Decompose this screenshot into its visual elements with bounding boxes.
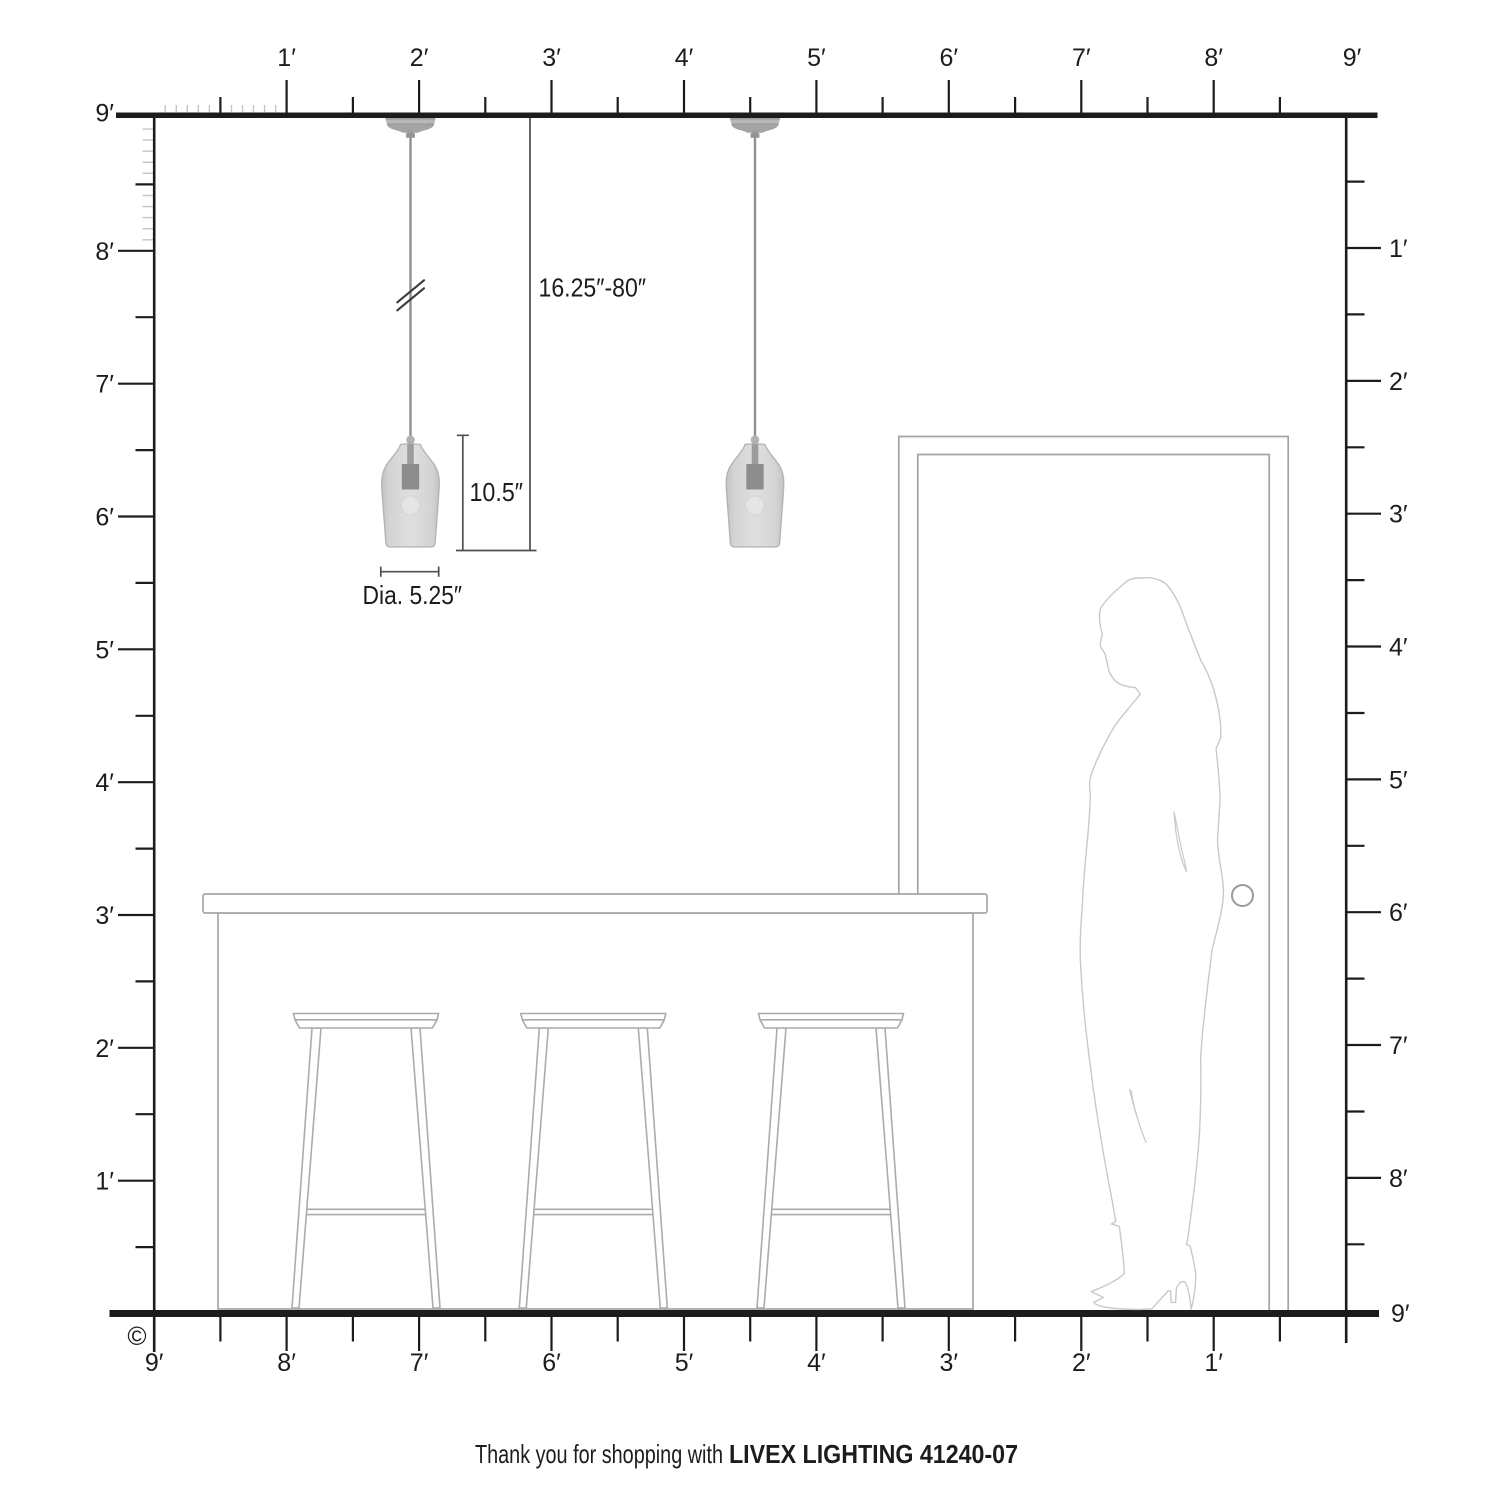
svg-text:4′: 4′ (95, 769, 114, 797)
svg-text:5′: 5′ (95, 636, 114, 664)
svg-text:9′: 9′ (1343, 44, 1362, 72)
svg-text:3′: 3′ (542, 44, 561, 72)
svg-text:Thank you for shopping with: Thank you for shopping with (475, 1439, 723, 1469)
svg-text:9′: 9′ (145, 1349, 164, 1377)
svg-text:16.25″-80″: 16.25″-80″ (539, 273, 647, 303)
svg-text:4′: 4′ (1389, 634, 1408, 662)
svg-text:7′: 7′ (1072, 44, 1091, 72)
svg-text:8′: 8′ (1389, 1165, 1408, 1193)
svg-text:10.5″: 10.5″ (470, 477, 524, 507)
svg-text:1′: 1′ (277, 44, 296, 72)
svg-text:2′: 2′ (410, 44, 429, 72)
svg-text:4′: 4′ (675, 44, 694, 72)
svg-text:6′: 6′ (95, 504, 114, 532)
svg-text:7′: 7′ (1389, 1032, 1408, 1060)
svg-text:LIVEX LIGHTING 41240-07: LIVEX LIGHTING 41240-07 (729, 1439, 1018, 1469)
svg-text:2′: 2′ (95, 1035, 114, 1063)
svg-text:9′: 9′ (95, 100, 114, 128)
svg-text:1′: 1′ (95, 1168, 114, 1196)
svg-text:6′: 6′ (1389, 899, 1408, 927)
svg-text:8′: 8′ (1204, 44, 1223, 72)
svg-text:7′: 7′ (95, 371, 114, 399)
svg-text:5′: 5′ (807, 44, 826, 72)
svg-text:8′: 8′ (277, 1349, 296, 1377)
svg-text:4′: 4′ (807, 1349, 826, 1377)
svg-text:5′: 5′ (1389, 766, 1408, 794)
svg-text:5′: 5′ (675, 1349, 694, 1377)
svg-text:2′: 2′ (1389, 368, 1408, 396)
svg-text:6′: 6′ (542, 1349, 561, 1377)
svg-text:8′: 8′ (95, 238, 114, 266)
svg-text:3′: 3′ (95, 902, 114, 930)
svg-text:1′: 1′ (1389, 235, 1408, 263)
svg-text:6′: 6′ (940, 44, 959, 72)
svg-text:3′: 3′ (1389, 501, 1408, 529)
svg-text:Dia. 5.25″: Dia. 5.25″ (363, 580, 463, 610)
svg-text:7′: 7′ (410, 1349, 429, 1377)
svg-text:2′: 2′ (1072, 1349, 1091, 1377)
svg-text:1′: 1′ (1204, 1349, 1223, 1377)
svg-text:9′: 9′ (1391, 1300, 1410, 1328)
svg-text:3′: 3′ (940, 1349, 959, 1377)
svg-text:©: © (127, 1321, 146, 1351)
